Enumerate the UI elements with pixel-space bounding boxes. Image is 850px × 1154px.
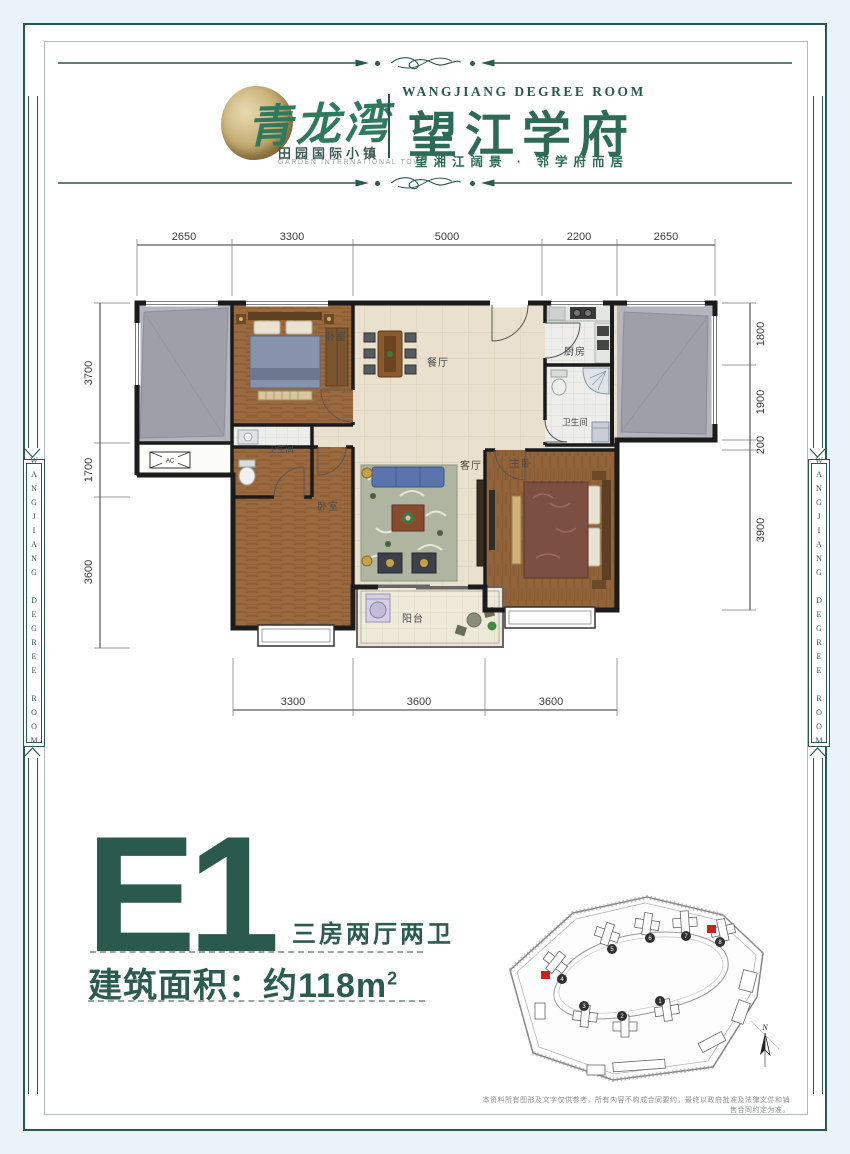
poster: WANGJIANG DEGREE ROOM WANGJIANG DEGREE R…	[0, 0, 850, 1154]
flourish-icon	[386, 53, 464, 73]
floorplan: 2650 3300 5000 2200 2650 3300 3600 3600 …	[78, 228, 770, 728]
dining-set	[364, 331, 416, 377]
left-band-line-top	[28, 96, 38, 448]
ornament-dot	[470, 61, 475, 66]
label-kitchen: 厨房	[564, 345, 586, 358]
ornament-line-right	[481, 177, 792, 189]
svg-text:3700: 3700	[83, 361, 95, 385]
dim-top: 2650 3300 5000 2200 2650	[137, 231, 715, 296]
ornament-line-left	[58, 177, 369, 189]
svg-text:3600: 3600	[539, 696, 563, 708]
unit-layout: 三房两厅两卫	[292, 914, 454, 949]
ornament-dot	[375, 181, 380, 186]
svg-text:N: N	[761, 1023, 768, 1032]
svg-text:3300: 3300	[280, 231, 304, 243]
right-band-text: WANGJIANG DEGREE ROOM	[815, 456, 824, 750]
project-tagline: 望湘江阔景 · 邻学府而居	[400, 151, 644, 170]
label-dining: 餐厅	[427, 356, 449, 369]
right-band-chevron-bottom	[809, 747, 826, 757]
logo-divider	[388, 94, 390, 158]
flourish-icon	[386, 173, 464, 193]
svg-text:1800: 1800	[755, 322, 767, 346]
svg-text:3300: 3300	[281, 696, 305, 708]
dashed-divider	[90, 951, 423, 953]
dashed-divider	[88, 1000, 425, 1002]
label-bath2: 卫生间	[562, 417, 588, 427]
left-band-chevron-bottom	[24, 747, 41, 757]
svg-text:2200: 2200	[567, 231, 591, 243]
compass-icon: N	[751, 1021, 779, 1067]
label-balcony: 阳台	[402, 612, 424, 625]
label-master: 主卧	[510, 457, 532, 470]
ornament-bottom	[58, 172, 792, 194]
right-band-line-top	[813, 96, 823, 448]
disclaimer-text: 本资料所有图形及文字仅供参考，所有内容不构成合同要约，最终以政府批准及法律文件和…	[480, 1095, 790, 1115]
left-band-line-bottom	[28, 758, 38, 1094]
svg-text:3900: 3900	[755, 518, 767, 542]
highlight-unit-marker	[541, 971, 550, 979]
label-living: 客厅	[460, 459, 482, 472]
svg-text:3600: 3600	[83, 560, 95, 584]
ornament-dot	[375, 61, 380, 66]
left-band-box: WANGJIANG DEGREE ROOM	[23, 459, 45, 747]
siteplan: 1 2 3 4 5 6 7 8 N	[495, 885, 790, 1090]
ornament-dot	[470, 181, 475, 186]
label-bedroom-top: 卧室	[325, 330, 347, 343]
dim-left: 3700 1700 3600	[83, 303, 130, 648]
ornament-line-left	[58, 57, 369, 69]
right-band-line-bottom	[813, 758, 823, 1094]
svg-text:3600: 3600	[407, 696, 431, 708]
unit-area-sup: 2	[387, 969, 398, 989]
svg-text:1900: 1900	[755, 390, 767, 414]
svg-text:1700: 1700	[83, 458, 95, 482]
ornament-top	[58, 52, 792, 74]
svg-text:200: 200	[755, 436, 767, 454]
right-band-box: WANGJIANG DEGREE ROOM	[808, 459, 830, 747]
highlight-unit-marker	[707, 925, 716, 933]
label-bath1: 卫生间	[268, 444, 294, 454]
dim-bottom: 3300 3600 3600	[233, 658, 617, 716]
dim-right: 1800 1900 200 3900	[722, 303, 767, 610]
svg-text:5000: 5000	[435, 231, 459, 243]
ac-label: AC	[166, 459, 175, 465]
ornament-line-right	[481, 57, 792, 69]
ac-ledge: AC	[137, 443, 232, 475]
svg-text:2650: 2650	[172, 231, 196, 243]
label-bedroom-bottom: 卧室	[317, 500, 339, 513]
left-band-text: WANGJIANG DEGREE ROOM	[30, 456, 39, 750]
svg-text:2650: 2650	[654, 231, 678, 243]
